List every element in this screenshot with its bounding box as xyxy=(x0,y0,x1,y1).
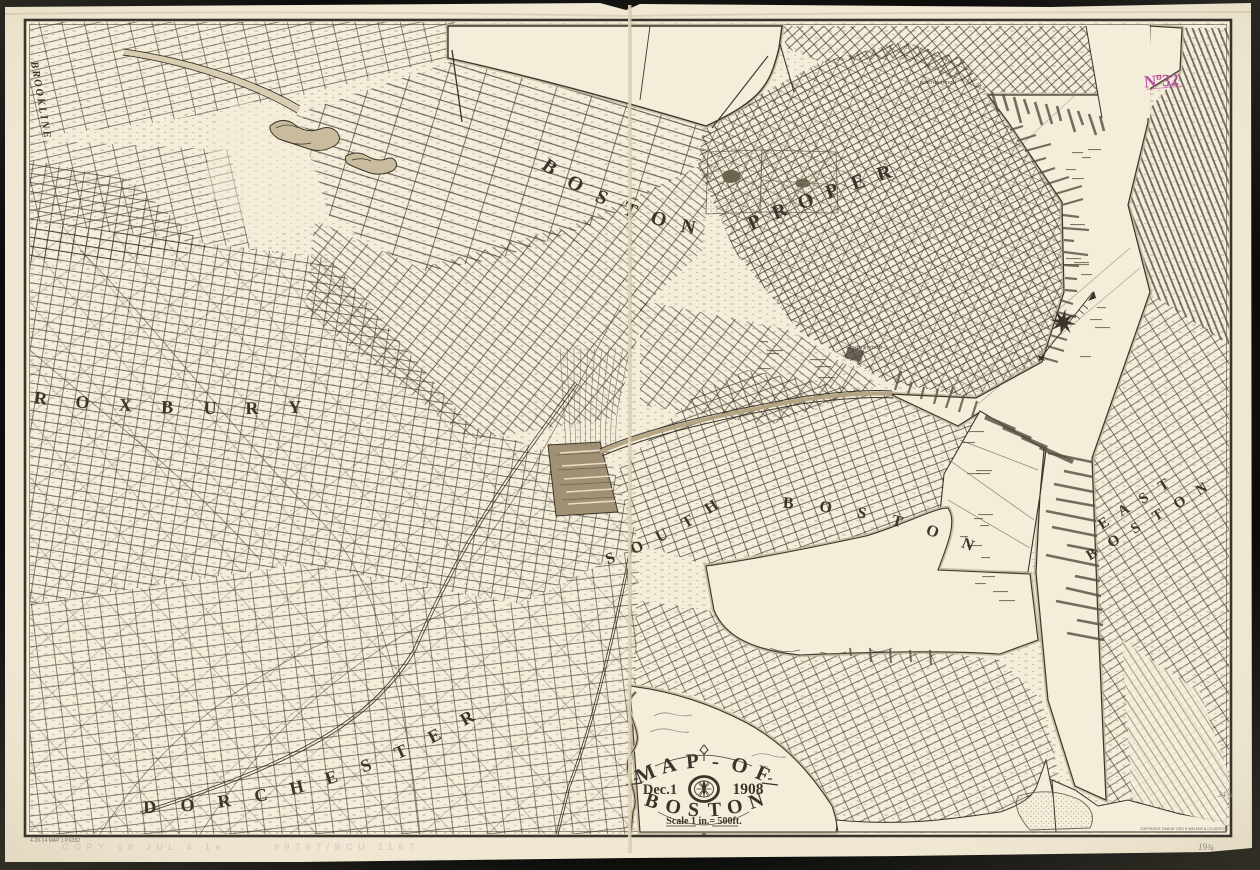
svg-text:1908: 1908 xyxy=(733,781,764,798)
svg-text:Dec.1: Dec.1 xyxy=(643,782,677,798)
svg-text:B: B xyxy=(782,495,794,513)
svg-text:4-29-14 MAP 1 P.6352: 4-29-14 MAP 1 P.6352 xyxy=(30,838,80,844)
svg-text:SOUTH STATION: SOUTH STATION xyxy=(846,345,882,350)
svg-text:O: O xyxy=(818,498,833,517)
svg-text:D: D xyxy=(143,797,157,817)
svg-text:P: P xyxy=(685,748,700,773)
svg-text:U: U xyxy=(203,398,216,418)
svg-text:R: R xyxy=(245,398,259,418)
svg-text:COPYRIGHT 1908 BY GEO H WALKER: COPYRIGHT 1908 BY GEO H WALKER & CO BOST… xyxy=(1140,827,1229,831)
svg-text:X: X xyxy=(118,395,132,416)
svg-text:19¾: 19¾ xyxy=(1198,842,1214,852)
svg-text:Scale 1 in.= 500ft.: Scale 1 in.= 500ft. xyxy=(666,816,742,827)
svg-text:Y: Y xyxy=(288,397,302,417)
svg-text:O: O xyxy=(180,794,196,815)
svg-text:COPY 18 JUL 4 1a 89797/BC: COPY 18 JUL 4 1a 89797/BCU 1167 xyxy=(62,842,419,852)
svg-text:O: O xyxy=(75,391,91,412)
svg-text:B: B xyxy=(161,397,174,417)
svg-text:NORTH STATION: NORTH STATION xyxy=(920,80,956,85)
svg-text:34¾: 34¾ xyxy=(1217,790,1232,799)
